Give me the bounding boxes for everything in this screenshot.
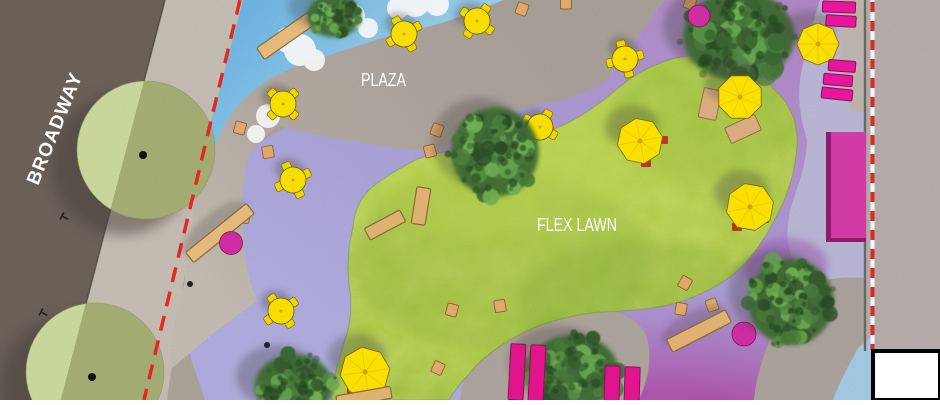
svg-text:PLAZA: PLAZA <box>361 69 407 90</box>
svg-text:FLEX LAWN: FLEX LAWN <box>537 215 617 235</box>
